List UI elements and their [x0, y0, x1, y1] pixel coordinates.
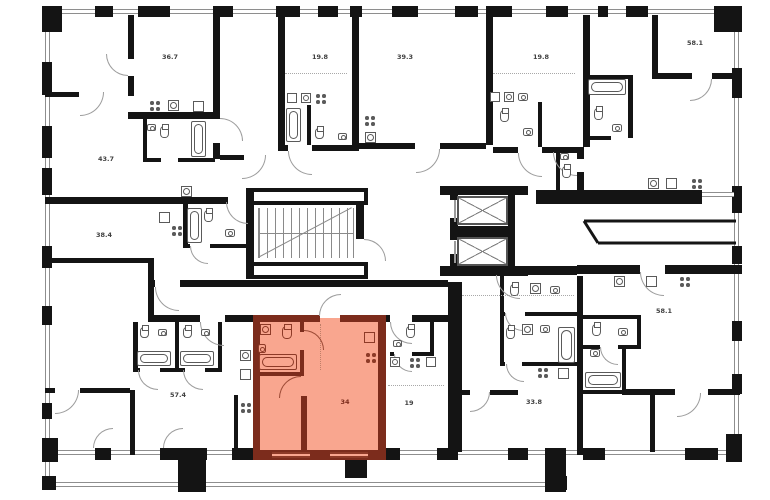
wall-segment: [618, 345, 641, 349]
washer-icon: [614, 276, 625, 287]
bathtub-icon: [180, 351, 214, 366]
wall-segment: [42, 306, 52, 325]
window: [330, 452, 368, 458]
door-arc: [600, 347, 618, 365]
wall-segment: [520, 266, 577, 275]
sink-icon: [338, 133, 347, 140]
wall-segment: [714, 6, 742, 32]
cabinet-icon: [646, 276, 657, 287]
wall-segment: [455, 6, 478, 17]
wall-segment: [95, 448, 111, 460]
wall-segment: [637, 315, 641, 347]
wall-segment: [525, 312, 578, 316]
wall-segment: [685, 448, 718, 460]
door-arc: [93, 428, 113, 448]
door-arc: [183, 370, 203, 390]
wall-segment: [732, 321, 742, 341]
wall-segment: [178, 158, 215, 162]
wall-segment: [95, 6, 113, 17]
toilet-icon: [592, 324, 601, 336]
door-arc: [138, 370, 158, 390]
cabinet-icon: [426, 357, 436, 367]
wall-segment: [583, 315, 641, 319]
bathtub-icon: [191, 121, 206, 157]
fridge-icon: [364, 332, 375, 343]
door-arc: [690, 79, 712, 101]
window: [272, 452, 310, 458]
wall-segment: [42, 168, 52, 195]
door-arc: [106, 54, 128, 76]
door-arc: [226, 202, 248, 224]
wall-segment: [598, 6, 608, 17]
toilet-icon: [282, 326, 292, 339]
wall-segment: [205, 368, 222, 372]
washer-icon: [181, 186, 192, 197]
wall-segment: [143, 115, 147, 160]
wall-segment: [318, 6, 338, 17]
wall-segment: [42, 438, 58, 462]
elevator-door: [454, 241, 456, 263]
room-area-label: 19.8: [312, 53, 328, 61]
washer-icon: [240, 350, 251, 361]
stair-landing-line: [258, 233, 354, 234]
sink-icon: [540, 325, 550, 333]
room-area-label: 38.4: [96, 231, 112, 239]
room-area-label: 19: [404, 399, 413, 407]
wall-segment: [128, 112, 220, 119]
door-arc: [220, 118, 243, 141]
sink-icon: [590, 349, 600, 357]
wall-segment: [45, 197, 228, 204]
stove-icon: [678, 275, 690, 287]
room-area-label: 36.7: [162, 53, 178, 61]
door-arc: [288, 151, 312, 175]
wall-segment: [213, 143, 220, 159]
cabinet-icon: [666, 178, 677, 189]
washer-icon: [365, 132, 376, 143]
washer-icon: [301, 93, 311, 103]
door-arc: [55, 390, 79, 414]
wall-segment: [148, 280, 155, 287]
sink-icon: [550, 286, 560, 294]
stove-icon: [148, 99, 160, 111]
wall-segment: [538, 102, 542, 147]
wall-segment: [546, 6, 568, 17]
sink-icon: [393, 340, 402, 347]
stove-icon: [536, 366, 548, 378]
wall-segment: [128, 76, 134, 96]
wall-segment: [175, 322, 179, 370]
room-area-label: 58.1: [687, 39, 703, 47]
wall-segment: [160, 368, 185, 372]
floor-plan: 36.7 19.8 39.3 19.8 58.1 43.7 38.4 58.1 …: [0, 0, 770, 500]
wall-segment: [392, 6, 418, 17]
door-arc: [80, 92, 104, 116]
wall-segment: [440, 143, 486, 149]
wall-segment: [42, 246, 52, 268]
door-arc: [163, 428, 183, 448]
room-area-label: 33.8: [526, 398, 542, 406]
toilet-icon: [500, 110, 509, 122]
toilet-icon: [594, 108, 603, 120]
wall-segment: [45, 92, 79, 97]
window: [702, 192, 734, 197]
door-arc: [470, 392, 490, 412]
wall-segment: [210, 244, 248, 248]
wall-segment: [665, 265, 742, 274]
wall-segment: [622, 347, 626, 392]
elevator-icon: [457, 196, 508, 225]
wall-segment: [652, 15, 658, 75]
stove-icon: [314, 92, 326, 104]
door-arc: [518, 153, 542, 177]
wall-segment: [583, 448, 605, 460]
wall-segment: [628, 75, 633, 138]
door-arc: [506, 364, 524, 382]
wall-segment: [385, 448, 400, 460]
door-arc: [242, 155, 266, 179]
wall-segment: [412, 315, 448, 322]
wall-segment: [500, 362, 505, 366]
dashed-zone-line: [493, 73, 575, 74]
sink-icon: [560, 153, 569, 160]
toilet-icon: [315, 128, 324, 139]
wall-segment: [312, 145, 359, 151]
washer-icon: [260, 324, 271, 335]
wall-segment: [178, 455, 206, 492]
washer-icon: [504, 92, 514, 102]
sink-icon: [612, 124, 622, 132]
stove-icon: [690, 177, 702, 189]
sink-icon: [201, 329, 210, 336]
wall-segment: [536, 190, 702, 204]
cabinet-icon: [558, 368, 569, 379]
wall-segment: [583, 136, 611, 140]
room-area-label: 57.4: [170, 391, 186, 399]
highlight-wall-segment: [253, 315, 320, 322]
toilet-icon: [160, 126, 169, 138]
door-arc: [155, 287, 179, 311]
washer-icon: [390, 357, 400, 367]
bathtub-icon: [187, 208, 202, 243]
wall-segment: [234, 395, 238, 452]
wall-segment: [42, 476, 56, 490]
wall-segment: [622, 389, 675, 395]
cabinet-icon: [287, 93, 297, 103]
dashed-zone-line: [285, 73, 347, 74]
wall-segment: [307, 105, 311, 145]
wall-segment: [42, 126, 52, 158]
wall-segment: [148, 258, 154, 320]
cabinet-icon: [490, 92, 500, 102]
stair-landing-wall: [250, 262, 368, 279]
cabinet-icon: [240, 369, 251, 380]
wall-segment: [45, 258, 150, 263]
plan-shape: [584, 221, 736, 243]
wall-segment: [143, 158, 161, 162]
door-arc: [364, 239, 386, 261]
wall-segment: [712, 73, 734, 79]
wall-segment: [130, 390, 135, 455]
wall-segment: [486, 15, 493, 145]
wall-segment: [430, 322, 434, 354]
stove-icon: [239, 401, 251, 413]
cabinet-icon: [159, 212, 170, 223]
highlight-wall-segment: [378, 315, 386, 460]
sink-icon: [158, 329, 167, 336]
room-area-label: 58.1: [656, 307, 672, 315]
highlight-wall-segment: [301, 396, 307, 452]
elevator-icon: [457, 237, 508, 266]
wall-segment: [148, 315, 200, 322]
wall-segment: [220, 155, 244, 160]
dashed-zone-line: [388, 385, 444, 386]
door-arc: [677, 393, 701, 417]
wall-segment: [553, 476, 567, 490]
wall-segment: [180, 280, 448, 287]
door-arc: [416, 149, 440, 173]
corridor-ramp-outline: [578, 213, 740, 249]
wall-segment: [440, 186, 528, 195]
cabinet-icon: [193, 101, 204, 112]
room-area-label: 19.8: [533, 53, 549, 61]
bathtub-icon: [585, 372, 621, 388]
washer-icon: [168, 100, 179, 111]
wall-segment: [138, 6, 170, 17]
wall-segment: [42, 62, 52, 95]
sink-icon: [518, 93, 528, 101]
toilet-icon: [506, 327, 515, 339]
wall-segment: [652, 73, 692, 79]
toilet-icon: [510, 284, 519, 296]
stair-landing-wall: [250, 188, 368, 205]
toilet-icon: [204, 210, 213, 222]
wall-segment: [42, 6, 62, 32]
wall-segment: [42, 403, 52, 419]
washer-icon: [522, 324, 533, 335]
wall-segment: [626, 6, 648, 17]
toilet-icon: [562, 166, 571, 178]
wall-segment: [213, 15, 220, 118]
wall-segment: [278, 145, 288, 151]
bathtub-icon: [588, 79, 626, 95]
sink-icon: [618, 328, 628, 336]
wall-segment: [225, 315, 255, 322]
wall-segment: [45, 388, 55, 393]
wall-segment: [183, 244, 190, 248]
door-arc: [190, 246, 208, 264]
wall-segment: [356, 205, 364, 239]
stove-icon: [363, 114, 375, 126]
door-arc: [319, 294, 341, 316]
wall-segment: [80, 388, 130, 393]
stove-icon: [364, 351, 376, 363]
wall-segment: [493, 147, 518, 153]
window: [45, 482, 565, 487]
toilet-icon: [406, 326, 415, 338]
wall-segment: [448, 282, 462, 452]
wall-segment: [508, 448, 528, 460]
bathtub-icon: [558, 327, 575, 363]
room-area-label: 43.7: [98, 155, 114, 163]
washer-icon: [530, 283, 541, 294]
wall-segment: [490, 390, 518, 395]
sink-icon: [147, 124, 156, 131]
toilet-icon: [183, 327, 192, 338]
sink-icon: [523, 128, 533, 136]
toilet-icon: [140, 327, 149, 338]
highlight-wall-segment: [253, 315, 260, 460]
wall-segment: [386, 315, 390, 322]
wall-segment: [352, 15, 359, 148]
bathtub-icon: [286, 108, 301, 142]
wall-segment: [359, 143, 415, 149]
wall-segment: [732, 186, 742, 213]
elevator-door: [454, 200, 456, 222]
bathtub-icon: [259, 354, 297, 370]
sink-icon: [258, 344, 266, 353]
wall-segment: [577, 265, 640, 274]
wall-segment: [452, 226, 510, 237]
wall-segment: [708, 389, 740, 395]
washer-icon: [648, 178, 659, 189]
sink-icon: [225, 229, 235, 237]
wall-segment: [500, 315, 504, 364]
stove-icon: [408, 356, 420, 368]
room-area-label-highlighted: 34: [340, 398, 349, 406]
room-area-label: 39.3: [397, 53, 413, 61]
wall-segment: [583, 390, 626, 394]
wall-segment: [278, 15, 285, 148]
wall-segment: [650, 395, 655, 452]
stove-icon: [170, 224, 182, 236]
wall-segment: [726, 434, 742, 462]
bathtub-icon: [137, 351, 171, 366]
wall-segment: [462, 390, 470, 395]
wall-segment: [128, 15, 134, 59]
